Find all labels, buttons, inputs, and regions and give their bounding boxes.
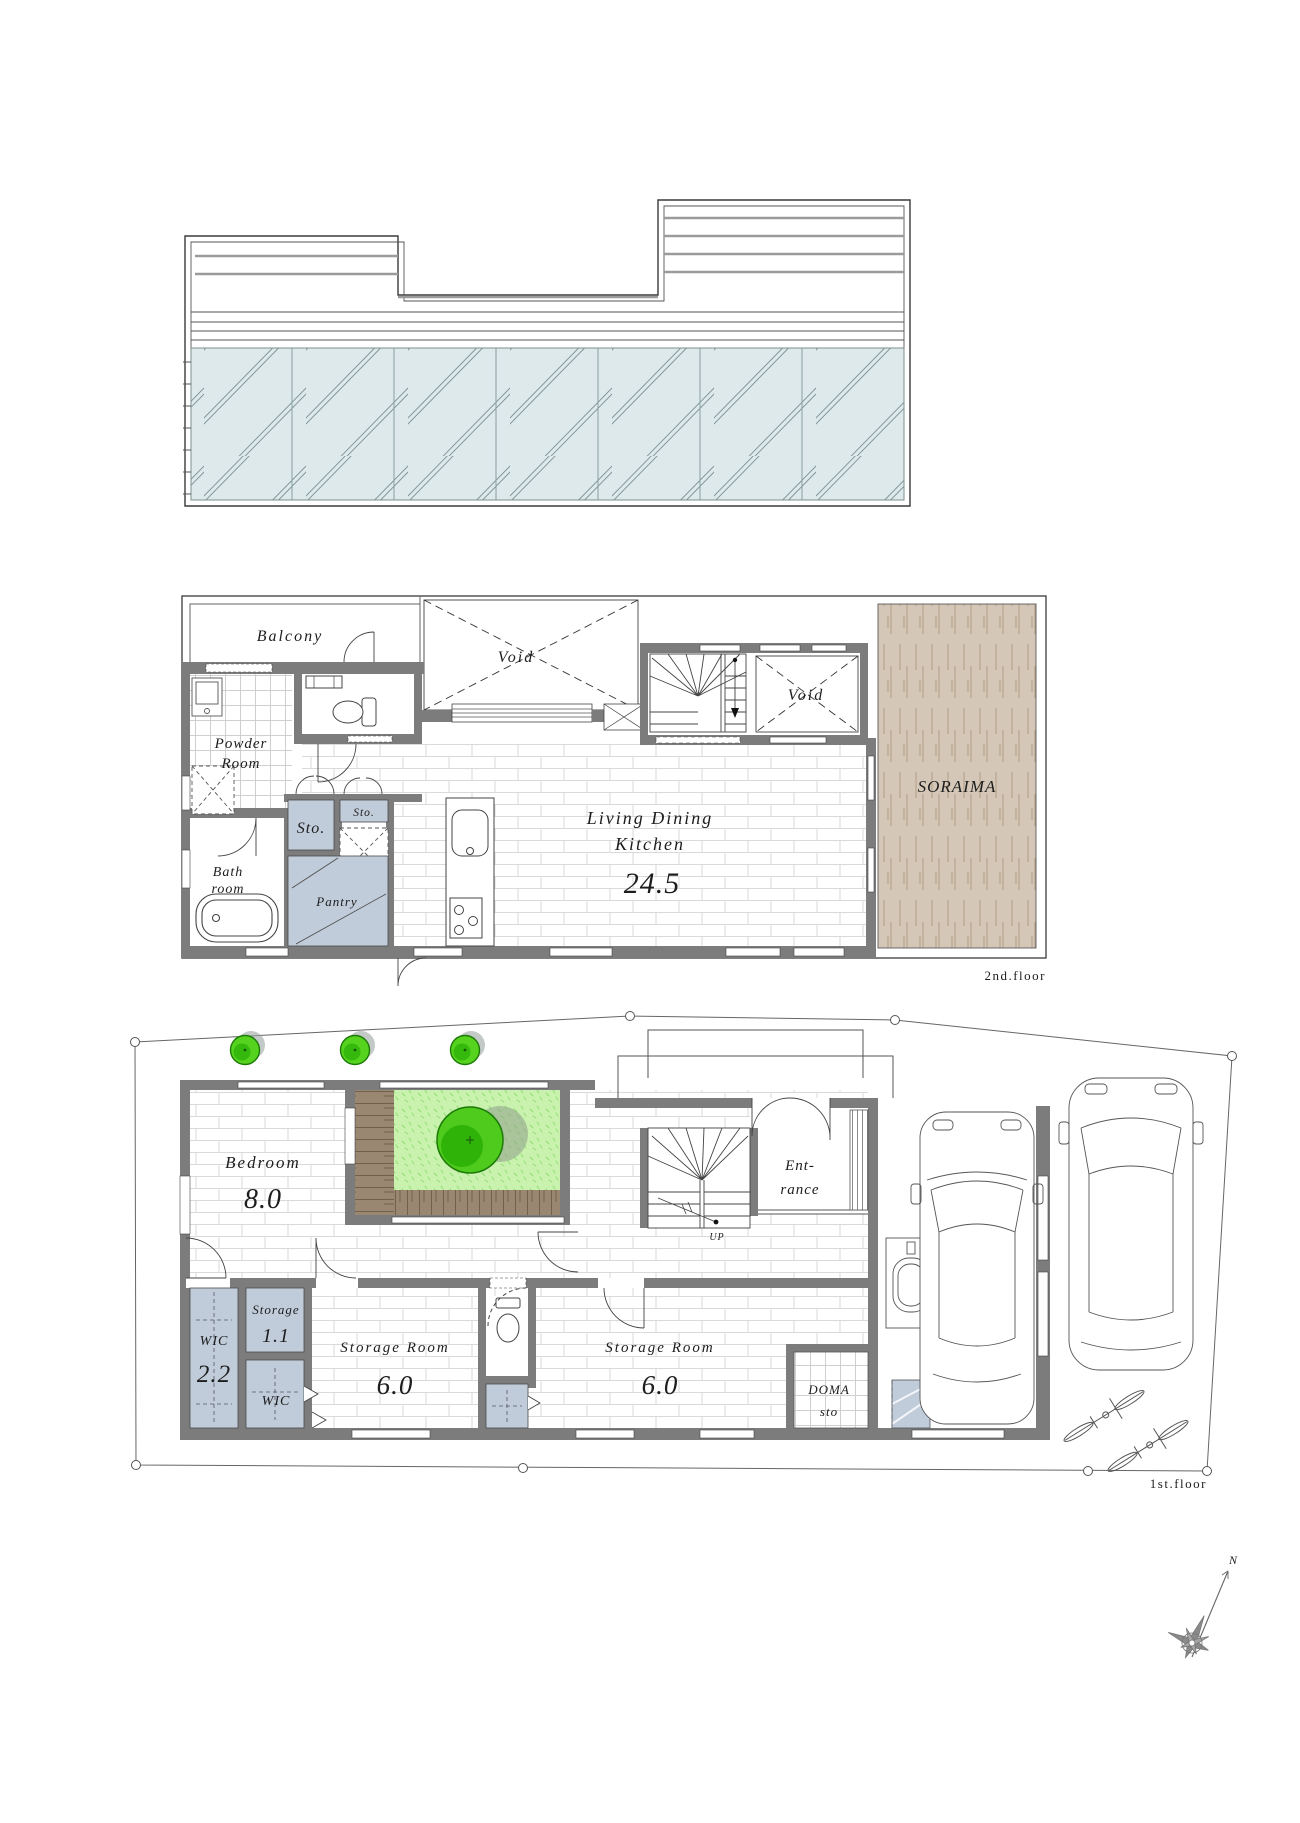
tree-icon — [451, 1031, 486, 1065]
roof-left-ticks — [183, 362, 191, 494]
f1-wic-area: 2.2 — [197, 1361, 231, 1388]
f1-staircase — [648, 1128, 750, 1228]
f1-porch-steps — [618, 1030, 893, 1098]
f1-up-label: UP — [709, 1232, 724, 1243]
f2-staircase — [650, 654, 746, 732]
f2-sto-small-label: Sto. — [353, 807, 375, 819]
f1-bedroom-area: 8.0 — [244, 1184, 282, 1215]
f2-bath-label-2: room — [211, 882, 244, 897]
f2-powder-label-1: Powder — [214, 736, 268, 752]
f1-shoe-cabinet — [850, 1110, 868, 1210]
roof-ridge-lines — [195, 218, 904, 297]
f1-doma-label-2: sto — [820, 1404, 838, 1419]
f1-storage-sm-area: 1.1 — [262, 1325, 290, 1347]
f2-toilet — [306, 676, 376, 726]
roof-plan — [183, 200, 910, 506]
f2-bathtub — [196, 894, 278, 942]
car-garage-icon — [911, 1112, 1043, 1424]
f1-bedroom-label: Bedroom — [225, 1153, 301, 1172]
floorplan-page: Balcony Void Void Powder Room Bath room … — [0, 0, 1300, 1823]
f2-vanity — [192, 678, 222, 716]
f2-ldk-label-2: Kitchen — [614, 834, 685, 854]
f2-balcony-label: Balcony — [257, 628, 323, 645]
f2-void2-label: Void — [788, 687, 824, 704]
f2-soraima-deck — [878, 604, 1036, 948]
f2-washer — [192, 766, 234, 814]
f1-floor-label: 1st.floor — [1150, 1476, 1207, 1491]
f2-pantry-label: Pantry — [315, 894, 357, 909]
tree-icon — [341, 1031, 376, 1065]
f1-courtyard — [352, 1090, 568, 1222]
f1-storage-room2-area: 6.0 — [642, 1370, 679, 1400]
f2-kitchen-island — [446, 798, 494, 946]
f1-wic-small-label: WIC — [262, 1394, 291, 1409]
second-floor-plan: Balcony Void Void Powder Room Bath room … — [182, 596, 1046, 986]
f1-entrance-label-1: Ent- — [784, 1158, 815, 1174]
f1-garden-trees — [231, 1031, 486, 1065]
f2-sto-large-label: Sto. — [297, 820, 325, 837]
roof-hatched-panel — [191, 348, 904, 500]
f1-doma-label-1: DOMA — [807, 1382, 850, 1397]
f2-floor-label: 2nd.floor — [984, 968, 1046, 983]
f1-wic-label: WIC — [200, 1334, 229, 1349]
f2-void1-label: Void — [498, 649, 534, 666]
first-floor-plan: Bedroom 8.0 WIC 2.2 Storage 1.1 WIC Stor… — [131, 1012, 1237, 1492]
f2-ldk-label-1: Living Dining — [586, 808, 714, 828]
floorplan-drawing: Balcony Void Void Powder Room Bath room … — [0, 0, 1300, 1823]
f1-storage-room1-label: Storage Room — [340, 1340, 449, 1356]
car-driveway-icon — [1059, 1078, 1203, 1370]
tree-icon — [231, 1031, 266, 1065]
compass-north-label: N — [1228, 1553, 1238, 1567]
f2-ldk-area: 24.5 — [624, 867, 681, 900]
f1-wic-left — [190, 1288, 238, 1428]
f1-storage-room1-area: 6.0 — [377, 1370, 414, 1400]
f2-soraima-label: SORAIMA — [918, 777, 997, 796]
f2-louver-band — [420, 704, 644, 730]
bicycle-icon — [1058, 1381, 1150, 1451]
f1-storage-sm-label: Storage — [252, 1302, 299, 1317]
roof-eave-lines — [191, 312, 904, 340]
compass-rose: N — [1161, 1553, 1238, 1667]
f2-bath-label-1: Bath — [213, 865, 243, 880]
f2-powder-label-2: Room — [221, 756, 261, 772]
f1-storage-room2-label: Storage Room — [605, 1340, 714, 1356]
f1-entrance-label-2: rance — [780, 1182, 819, 1198]
